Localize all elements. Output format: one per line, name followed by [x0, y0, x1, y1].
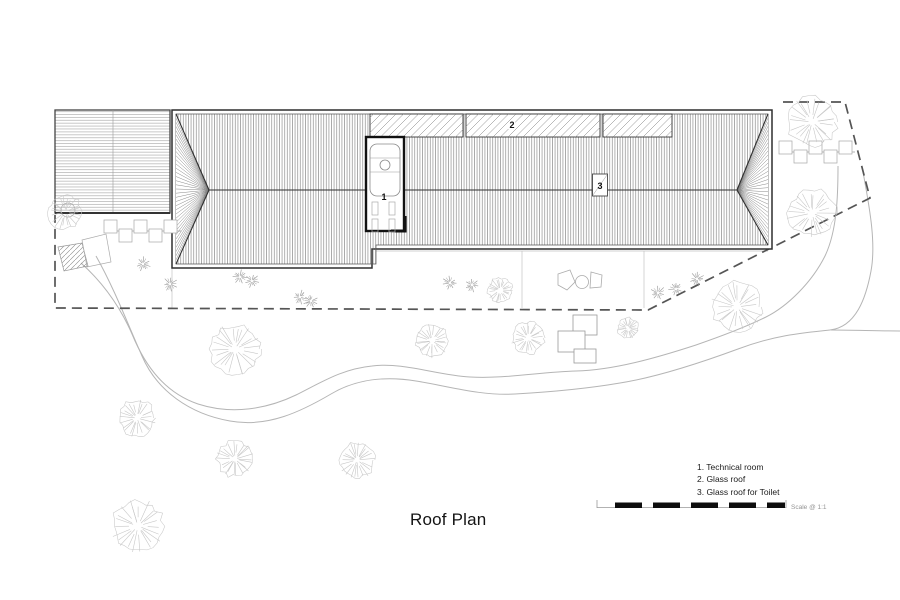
- tree-branch: [238, 352, 252, 366]
- glass-roof-label: 2: [509, 120, 514, 130]
- tree: [487, 278, 513, 303]
- tree-branch: [819, 202, 827, 208]
- tree-canopy-outline: [788, 95, 838, 147]
- glass-panel-hatch: [370, 114, 463, 137]
- plant-leaf: [651, 290, 657, 293]
- tree-branch: [148, 527, 159, 528]
- tree-branch: [240, 463, 245, 467]
- tree-branch: [229, 354, 234, 373]
- tree: [339, 443, 376, 479]
- plant-leaf: [678, 287, 680, 288]
- plant: [304, 295, 318, 307]
- stepping-stones: [558, 315, 597, 363]
- tree-branch: [237, 447, 249, 457]
- tree-branch: [216, 458, 230, 459]
- wall-block: [119, 229, 132, 242]
- tree-branch: [360, 458, 376, 459]
- tree-branch: [143, 412, 151, 416]
- plant-leaf: [238, 273, 239, 275]
- plant-leaf: [474, 284, 477, 285]
- plant-leaf: [299, 299, 300, 303]
- tree-branch: [237, 445, 244, 455]
- garden-path-branch: [831, 330, 900, 331]
- wall-block: [779, 141, 792, 154]
- plant-leaf: [471, 279, 472, 284]
- plant-leaf: [695, 273, 696, 277]
- tree-branch: [733, 282, 736, 298]
- toilet-glass-roof-label: 3: [597, 181, 602, 191]
- tree-branch: [796, 125, 808, 135]
- tree-branch: [741, 285, 749, 299]
- technical-room: 1: [366, 137, 405, 232]
- tree-branch: [132, 507, 137, 522]
- plant-leaf: [312, 302, 317, 304]
- tree-branch: [235, 463, 236, 476]
- plant: [294, 290, 307, 304]
- tree-branch: [518, 341, 524, 346]
- plant-leaf: [699, 280, 701, 281]
- tree-branch: [493, 294, 497, 299]
- tree-branch: [803, 219, 809, 230]
- tree-branch: [532, 333, 539, 336]
- tree-branch: [238, 446, 248, 456]
- tree-branch: [63, 216, 65, 225]
- tree-branch: [816, 216, 829, 226]
- tree: [788, 95, 838, 147]
- tree-branch: [134, 405, 136, 413]
- plant-leaf: [452, 284, 455, 285]
- plant-leaf: [242, 276, 245, 277]
- tree-branch: [740, 312, 750, 328]
- stepping-stone: [574, 349, 596, 363]
- plant-leaf: [451, 280, 455, 282]
- tree-branch: [792, 107, 806, 117]
- tree-branch: [790, 120, 809, 122]
- scale-bar-segment: [691, 503, 718, 509]
- tree-branch: [516, 339, 523, 340]
- tree-branch: [729, 313, 735, 331]
- tree-branch: [359, 444, 366, 456]
- plant-leaf: [473, 285, 478, 286]
- tree-branch: [217, 351, 229, 355]
- plant: [690, 272, 703, 286]
- tree-branch: [228, 444, 234, 457]
- tree-branch: [718, 294, 733, 304]
- scale-bar-segment: [615, 503, 642, 509]
- left-roof-building: [55, 110, 170, 213]
- tree-branch: [788, 211, 804, 212]
- tree-branch: [222, 327, 232, 345]
- tree-branch: [113, 529, 130, 536]
- plant-leaf: [170, 278, 171, 283]
- tree-branch: [742, 309, 762, 316]
- tree-branch: [516, 334, 526, 337]
- plant-leaf: [449, 276, 450, 282]
- wall-block: [164, 220, 177, 233]
- plant-leaf: [473, 281, 474, 283]
- tree: [712, 280, 763, 332]
- tree-branch: [530, 324, 535, 334]
- tree-branch: [740, 289, 749, 302]
- wall-block: [134, 220, 147, 233]
- plant-leaf: [247, 280, 250, 281]
- plant-leaf: [698, 274, 700, 277]
- plant-leaf: [242, 278, 245, 280]
- plant-leaf: [249, 276, 251, 279]
- plant-leaf: [446, 285, 448, 287]
- tree-branch: [239, 460, 252, 463]
- tree-branch: [741, 304, 756, 306]
- tree-branch: [812, 195, 813, 209]
- tree-branch: [787, 214, 808, 218]
- plant-leaf: [670, 287, 674, 288]
- crenellation-wall: [779, 141, 855, 163]
- legend-item-technical-room: 1. Technical room: [697, 461, 780, 473]
- tree-branch: [433, 326, 434, 335]
- tree-branch: [618, 328, 627, 330]
- tree-branch: [420, 342, 430, 350]
- plant-leaf: [144, 261, 149, 263]
- plant-leaf: [302, 298, 304, 300]
- plant-leaf: [698, 276, 704, 279]
- plant-leaf: [472, 286, 473, 292]
- tree-branch: [141, 422, 149, 431]
- tree-branch: [141, 511, 154, 523]
- plant-leaf: [142, 259, 143, 262]
- plant-leaf: [308, 297, 310, 300]
- plant-leaf: [254, 282, 257, 284]
- scale-bar-segment: [653, 503, 680, 509]
- plant-leaf: [312, 297, 313, 299]
- tree-branch: [213, 342, 228, 347]
- tree-branch: [811, 194, 812, 208]
- tree: [787, 189, 838, 237]
- plant: [137, 256, 150, 271]
- tree: [512, 321, 545, 355]
- tree-branch: [244, 346, 260, 348]
- plant-leaf: [675, 284, 676, 287]
- tree: [415, 324, 448, 358]
- glass-panel-hatch: [466, 114, 600, 137]
- plant-leaf: [298, 293, 299, 295]
- plant-leaf: [660, 294, 662, 295]
- plant-leaf: [240, 278, 242, 283]
- tree-branch: [342, 464, 352, 471]
- tree-branch: [492, 280, 498, 288]
- tree-branch: [818, 128, 831, 140]
- ramp-landing: [82, 234, 111, 267]
- plant-leaf: [469, 281, 471, 283]
- plant-leaf: [254, 279, 258, 280]
- tree-branch: [820, 123, 833, 125]
- plant-leaf: [659, 288, 660, 291]
- plant-leaf: [312, 298, 317, 301]
- tree-branch: [533, 336, 543, 337]
- plant-leaf: [144, 259, 146, 263]
- stone: [576, 276, 589, 289]
- plant-leaf: [143, 256, 144, 262]
- plant-leaf: [169, 286, 170, 290]
- tree-branch: [53, 215, 62, 222]
- wall-block: [794, 150, 807, 163]
- tree-canopy-outline: [513, 321, 545, 355]
- tree: [113, 500, 165, 553]
- legend: 1. Technical room 2. Glass roof 3. Glass…: [697, 461, 780, 498]
- tree-branch: [220, 451, 229, 456]
- tree-branch: [797, 101, 807, 115]
- plant-leaf: [451, 277, 452, 281]
- plant-leaf: [248, 283, 250, 286]
- tree-branch: [790, 206, 804, 211]
- tree-branch: [141, 422, 149, 429]
- tree-branch: [803, 129, 809, 143]
- tree-branch: [429, 324, 432, 338]
- scale-bar: Scale @ 1:1: [597, 500, 827, 511]
- plant: [466, 279, 478, 292]
- tree-canopy-outline: [617, 317, 638, 338]
- wall-block: [824, 150, 837, 163]
- plant-leaf: [139, 266, 142, 269]
- plant: [443, 276, 457, 290]
- glass-roof-panels: 2: [370, 114, 672, 137]
- plant-leaf: [451, 284, 453, 288]
- tree: [209, 325, 262, 375]
- plant-leaf: [696, 281, 697, 285]
- plant-leaf: [170, 285, 171, 291]
- tree-branch: [529, 341, 532, 351]
- plant-leaf: [660, 291, 664, 293]
- tree-branch: [817, 106, 831, 117]
- tree-branch: [819, 208, 829, 211]
- tree: [215, 441, 253, 478]
- glass-panel-hatch: [603, 114, 672, 137]
- tree: [617, 317, 638, 338]
- tree-branch: [234, 462, 235, 474]
- stone: [558, 270, 575, 290]
- tree-branch: [71, 215, 80, 219]
- plant-leaf: [141, 265, 143, 271]
- tree-branch: [813, 99, 815, 115]
- tree-branch: [60, 218, 64, 229]
- tree-canopy-outline: [339, 443, 376, 479]
- plant-leaf: [300, 298, 301, 304]
- tree-branch: [116, 519, 133, 525]
- tree-branch: [139, 535, 140, 552]
- tree-branch: [141, 417, 151, 418]
- tree-branch: [233, 329, 234, 341]
- scale-label: Scale @ 1:1: [791, 504, 827, 511]
- tree-branch: [422, 345, 428, 351]
- plant-leaf: [164, 284, 168, 285]
- stone: [590, 272, 602, 288]
- tree-branch: [745, 297, 758, 303]
- tree-canopy-outline: [120, 401, 156, 437]
- tree: [120, 400, 156, 437]
- plan-title: Roof Plan: [410, 510, 486, 530]
- plant: [245, 275, 259, 288]
- wall-block: [104, 220, 117, 233]
- roof-plan-page: 2 1 3: [0, 0, 900, 600]
- tree-branch: [526, 342, 527, 352]
- plant-leaf: [172, 283, 176, 284]
- left-roof: [55, 110, 170, 213]
- tree-branch: [243, 354, 256, 362]
- tree-branch: [212, 349, 228, 350]
- tree-branch: [819, 119, 834, 121]
- tree-branch: [815, 128, 824, 142]
- plant-leaf: [673, 291, 675, 293]
- tree-branch: [239, 338, 258, 347]
- tree-branch: [357, 463, 358, 478]
- toilet-glass-roof: 3: [593, 174, 608, 196]
- tree-branch: [490, 291, 496, 292]
- wall-block: [839, 141, 852, 154]
- tree-branch: [140, 501, 149, 521]
- plant-leaf: [474, 286, 476, 287]
- scale-bar-segment: [729, 503, 756, 509]
- plant-leaf: [302, 295, 304, 296]
- tree-branch: [236, 444, 237, 452]
- tree-branch: [143, 521, 157, 525]
- plant-leaf: [313, 303, 315, 305]
- tree-branch: [244, 351, 258, 354]
- crenellation-wall: [104, 220, 181, 242]
- plant-leaf: [245, 281, 250, 282]
- plant-leaf: [310, 295, 311, 300]
- tree-branch: [735, 311, 737, 326]
- tree-branch: [436, 337, 446, 340]
- tree-branch: [740, 294, 755, 305]
- tree-branch: [140, 404, 147, 414]
- technical-room-outline: [366, 137, 404, 231]
- plant: [651, 286, 664, 299]
- legend-item-glass-roof: 2. Glass roof: [697, 473, 780, 485]
- technical-room-label: 1: [381, 192, 386, 202]
- plant: [233, 270, 248, 284]
- tree-branch: [234, 441, 235, 456]
- tree-branch: [813, 128, 816, 142]
- wall-block: [149, 229, 162, 242]
- plant: [164, 278, 176, 292]
- scale-bar-segment: [767, 503, 785, 509]
- tree-branch: [121, 507, 131, 519]
- tree-branch: [793, 219, 805, 229]
- plant-leaf: [168, 279, 169, 282]
- tree-branch: [722, 310, 734, 320]
- tree-branch: [626, 331, 627, 337]
- tree-branch: [357, 443, 358, 456]
- plant-leaf: [166, 283, 168, 284]
- tree-branch: [434, 346, 437, 353]
- tree-branch: [133, 530, 138, 552]
- tree-branch: [622, 324, 626, 327]
- tree-branch: [120, 416, 135, 418]
- garden-stones: [558, 270, 602, 290]
- tree-branch: [631, 330, 636, 333]
- tree-canopy-outline: [215, 441, 252, 478]
- tree-branch: [237, 355, 242, 373]
- plant-leaf: [471, 287, 472, 291]
- tree-branch: [739, 316, 743, 329]
- plant-leaf: [443, 283, 449, 284]
- tree-branch: [791, 116, 805, 121]
- legend-item-toilet-glass-roof: 3. Glass roof for Toilet: [697, 486, 780, 498]
